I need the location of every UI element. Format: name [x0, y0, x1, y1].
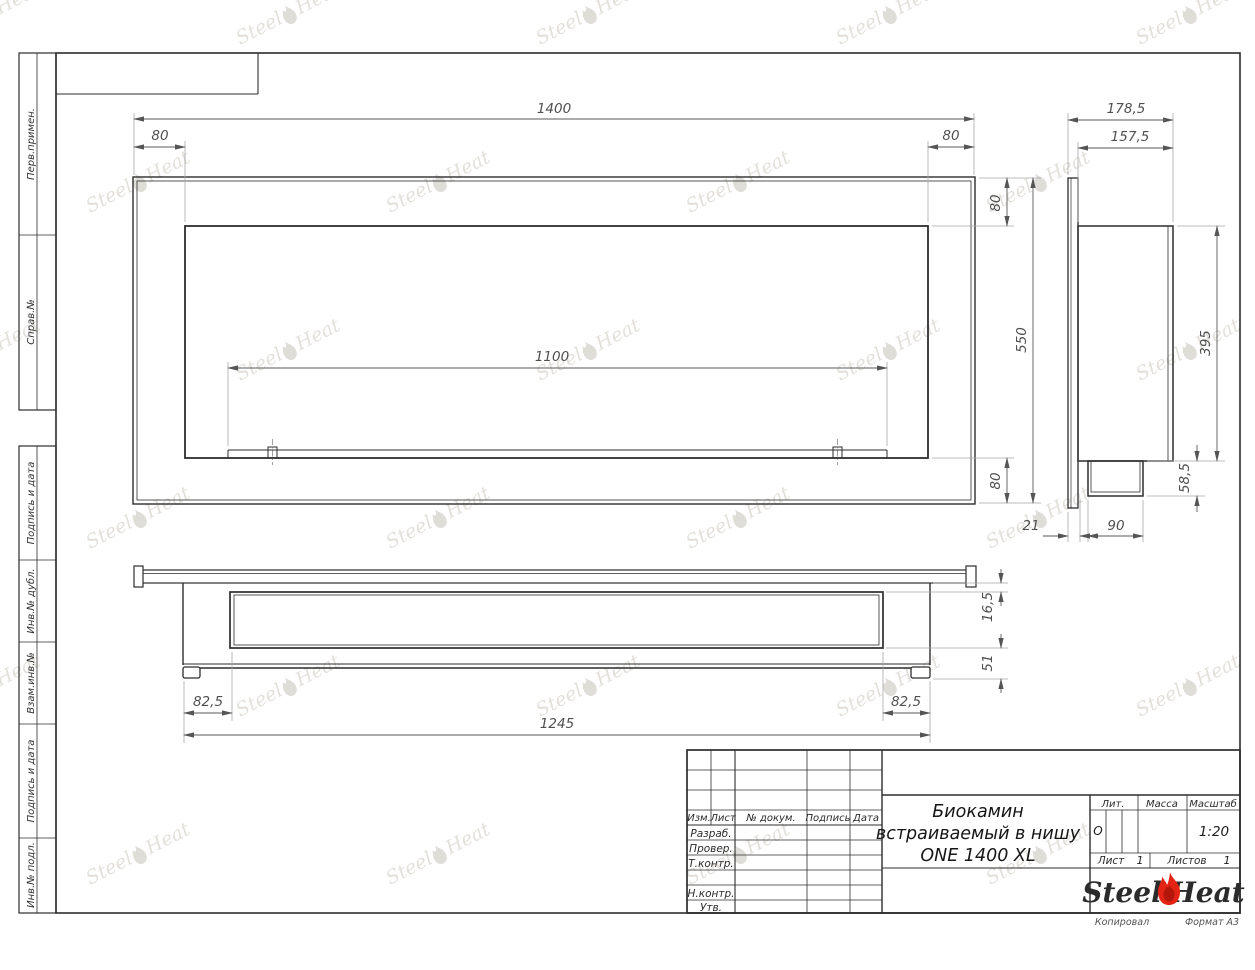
dim-front-height: 550: [1014, 327, 1030, 353]
row-ncontrol: Н.контр.: [688, 888, 735, 900]
svg-text:Steel: Steel: [382, 512, 436, 554]
dim-front-offset-right: 80: [942, 128, 959, 144]
svg-text:Heat: Heat: [891, 314, 944, 355]
svg-text:Steel: Steel: [1132, 680, 1186, 722]
side-view: [1068, 178, 1173, 508]
dim-front-offset-bottom: 80: [988, 472, 1004, 489]
svg-text:Heat: Heat: [741, 482, 794, 523]
side-extension-lines: [1068, 113, 1225, 542]
plan-foot: [183, 667, 200, 678]
dim-front-offset-left: 80: [151, 128, 168, 144]
dim-plan-rear-depth: 51: [980, 654, 996, 671]
plan-burner-recess: [230, 592, 883, 648]
dim-plan-offset-right: 82,5: [891, 694, 921, 710]
plan-end-cap: [134, 566, 143, 587]
svg-text:Steel: Steel: [82, 512, 136, 554]
dim-side-body-depth: 157,5: [1111, 129, 1150, 145]
watermark: SteelHeat: [382, 818, 494, 889]
doc-title-line3: ONE 1400 XL: [920, 846, 1035, 866]
watermark: SteelHeat: [682, 146, 794, 217]
doc-title-line1: Биокамин: [932, 802, 1023, 822]
watermark: SteelHeat: [232, 314, 344, 385]
svg-text:Heat: Heat: [291, 0, 344, 19]
svg-text:Steel: Steel: [682, 176, 736, 218]
logo-steel-text: Steel: [1082, 876, 1161, 909]
drawing-canvas: SteelHeatSteelHeatSteelHeatSteelHeatStee…: [0, 0, 1255, 970]
front-view: [133, 177, 975, 504]
dim-plan-flange-depth: 16,5: [980, 592, 996, 622]
margin-label: Инв.№ подл.: [26, 842, 37, 908]
sheets-label: Листов: [1166, 855, 1206, 867]
col-sign: Подпись: [806, 813, 851, 824]
plan-end-cap: [966, 566, 976, 587]
watermark: SteelHeat: [832, 650, 944, 721]
svg-text:Heat: Heat: [591, 0, 644, 19]
lit-value: О: [1093, 824, 1102, 838]
row-approved: Утв.: [700, 902, 722, 914]
col-date: Дата: [852, 813, 879, 824]
mass-label: Масса: [1146, 799, 1178, 810]
side-flange: [1068, 178, 1078, 508]
margin-label: Подпись и дата: [26, 462, 37, 545]
svg-text:Heat: Heat: [1191, 0, 1244, 19]
watermark: SteelHeat: [232, 650, 344, 721]
watermark: SteelHeat: [1132, 314, 1244, 385]
svg-text:Steel: Steel: [832, 680, 886, 722]
svg-text:Heat: Heat: [141, 818, 194, 859]
watermark: SteelHeat: [232, 0, 344, 49]
sheet-value: 1: [1137, 854, 1144, 867]
svg-text:Heat: Heat: [441, 818, 494, 859]
svg-text:Steel: Steel: [1132, 344, 1186, 386]
plan-foot: [911, 667, 930, 678]
copied-label: Копировал: [1095, 917, 1149, 928]
dim-front-offset-top: 80: [988, 194, 1004, 211]
watermark: SteelHeat: [82, 482, 194, 553]
svg-text:Heat: Heat: [1191, 650, 1244, 691]
watermark: SteelHeat: [1132, 0, 1244, 49]
svg-text:Steel: Steel: [832, 8, 886, 50]
watermark: SteelHeat: [1132, 650, 1244, 721]
watermark: SteelHeat: [532, 0, 644, 49]
watermark: SteelHeat: [832, 0, 944, 49]
front-extension-lines: [134, 113, 1041, 503]
watermark: SteelHeat: [82, 818, 194, 889]
format-label: Формат А3: [1185, 917, 1239, 928]
svg-text:Steel: Steel: [382, 176, 436, 218]
watermark: SteelHeat: [0, 0, 44, 49]
svg-text:Steel: Steel: [232, 344, 286, 386]
col-izm: Изм.: [687, 813, 711, 824]
watermark: SteelHeat: [382, 146, 494, 217]
frame: [56, 53, 1240, 913]
svg-text:Steel: Steel: [832, 344, 886, 386]
dim-side-burner-height: 58,5: [1177, 463, 1193, 493]
margin-label: Инв.№ дубл.: [25, 568, 37, 633]
doc-title-line2: встраиваемый в нишу: [876, 824, 1081, 844]
side-body: [1078, 226, 1173, 461]
svg-text:Heat: Heat: [741, 818, 794, 859]
watermark-layer: SteelHeatSteelHeatSteelHeatSteelHeatStee…: [0, 0, 1255, 889]
svg-text:Steel: Steel: [82, 176, 136, 218]
dim-plan-offset-left: 82,5: [193, 694, 223, 710]
col-doc: № докум.: [745, 813, 795, 824]
dim-side-flange-offset: 21: [1022, 518, 1039, 534]
col-list: Лист: [709, 813, 737, 824]
plan-flange-strip: [136, 570, 975, 583]
dim-side-burner-depth: 90: [1107, 518, 1124, 534]
svg-text:Steel: Steel: [682, 512, 736, 554]
margin-label: Подпись и дата: [26, 740, 37, 823]
drawing-sheet: SteelHeatSteelHeatSteelHeatSteelHeatStee…: [0, 0, 1255, 970]
margin-label: Взам.инв.№: [26, 652, 37, 714]
watermark: SteelHeat: [82, 146, 194, 217]
svg-text:Heat: Heat: [591, 650, 644, 691]
scale-value: 1:20: [1199, 824, 1229, 840]
svg-text:Steel: Steel: [82, 848, 136, 890]
dim-side-niche-height: 395: [1198, 330, 1214, 356]
dim-plan-mount-width: 1245: [540, 716, 574, 732]
svg-text:Heat: Heat: [591, 314, 644, 355]
sheet-label: Лист: [1097, 855, 1125, 867]
svg-text:Steel: Steel: [232, 8, 286, 50]
scale-label: Масштаб: [1189, 798, 1237, 810]
svg-text:Heat: Heat: [291, 650, 344, 691]
row-checked: Провер.: [689, 843, 733, 855]
svg-text:Heat: Heat: [141, 482, 194, 523]
sheets-value: 1: [1224, 854, 1231, 867]
steelheat-logo: Steel Heat: [1082, 872, 1244, 909]
svg-text:Steel: Steel: [532, 8, 586, 50]
plan-dimension-lines: [184, 569, 1001, 735]
side-burner-box: [1088, 461, 1143, 496]
svg-text:Steel: Steel: [382, 848, 436, 890]
svg-text:Steel: Steel: [1132, 8, 1186, 50]
svg-text:Heat: Heat: [891, 0, 944, 19]
watermark: SteelHeat: [532, 650, 644, 721]
row-developed: Разраб.: [690, 828, 731, 840]
svg-text:Heat: Heat: [0, 0, 44, 19]
dim-front-width: 1400: [537, 101, 571, 117]
svg-text:Steel: Steel: [232, 680, 286, 722]
watermark: SteelHeat: [682, 482, 794, 553]
plan-view: [134, 566, 976, 678]
margin-label: Перв.примен.: [26, 108, 37, 180]
margin-label: Справ.№: [26, 299, 37, 344]
margin-column: Перв.примен. Справ.№ Подпись и дата Инв.…: [19, 53, 56, 913]
svg-text:Heat: Heat: [291, 314, 344, 355]
lit-label: Лит.: [1100, 799, 1124, 810]
svg-text:Heat: Heat: [441, 482, 494, 523]
watermark: SteelHeat: [382, 482, 494, 553]
dim-front-opening-width: 1100: [535, 349, 569, 365]
dim-side-total-depth: 178,5: [1107, 101, 1146, 117]
row-tcontrol: Т.контр.: [688, 858, 734, 870]
